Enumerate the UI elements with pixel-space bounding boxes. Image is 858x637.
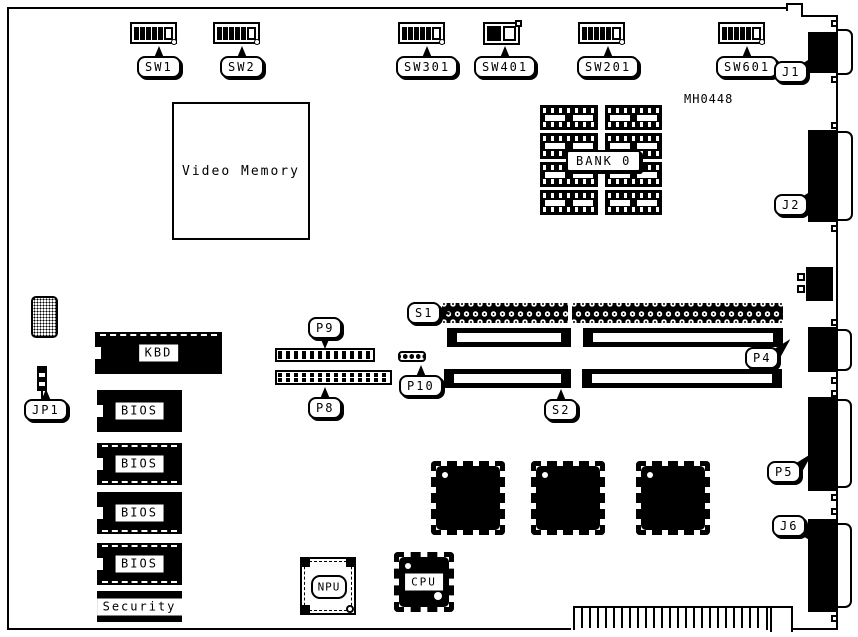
callout-j2: J2 xyxy=(774,194,808,216)
callout-sw301-label: SW301 xyxy=(404,60,450,74)
dip-indicator-dot xyxy=(759,39,765,45)
screw-hole xyxy=(831,390,838,397)
dip-segment-on xyxy=(217,27,222,40)
callout-s1-label: S1 xyxy=(415,306,433,320)
pin-header-p9 xyxy=(275,348,375,362)
dip-indicator-dot xyxy=(171,39,177,45)
npu-socket: NPU xyxy=(300,557,356,615)
screw-hole xyxy=(831,377,838,384)
crystal-component xyxy=(31,296,58,338)
cpu-pin1-dot xyxy=(434,592,442,600)
callout-p10-label: P10 xyxy=(407,379,435,393)
connector-din xyxy=(806,267,833,301)
dip-segment-off xyxy=(164,27,173,40)
dip-indicator-dot xyxy=(439,39,445,45)
video-memory-box: Video Memory xyxy=(172,102,310,240)
dip-indicator-dot xyxy=(254,39,260,45)
dsub-shell-p5 xyxy=(836,399,852,488)
socket-corner xyxy=(346,558,355,567)
video-memory-label: Video Memory xyxy=(182,164,300,179)
screw-hole xyxy=(831,76,838,83)
callout-p9: P9 xyxy=(308,317,342,339)
dip-segment-on xyxy=(223,27,228,40)
chip-notch xyxy=(97,458,103,470)
dip-segment-off xyxy=(247,27,256,40)
motherboard-diagram: SW1 SW2 SW301 SW401 SW201 SW601 J1 J2 P4… xyxy=(0,0,858,637)
connector-p4 xyxy=(808,327,838,372)
dip-segment-on xyxy=(152,27,157,40)
dip-segment-off xyxy=(752,27,761,40)
pointer-up-icon xyxy=(41,389,51,401)
bios-chip-label: BIOS xyxy=(115,403,164,420)
qfp-chip xyxy=(536,466,600,530)
dip-segment-off xyxy=(432,27,441,40)
dip-segment-on xyxy=(420,27,425,40)
callout-sw401: SW401 xyxy=(474,56,536,78)
connector-j1 xyxy=(808,32,838,73)
jumper-jp1 xyxy=(37,366,47,391)
memory-chip xyxy=(540,105,598,130)
pin-row xyxy=(278,373,389,377)
screw-hole xyxy=(831,319,838,326)
chip-dashes xyxy=(102,481,177,483)
dip-segment-on xyxy=(734,27,739,40)
bios-chip-2: BIOS xyxy=(97,443,182,485)
bios-chip-3: BIOS xyxy=(97,492,182,534)
callout-p8: P8 xyxy=(308,397,342,419)
socket-pin1-dot xyxy=(346,605,354,613)
chip-notch xyxy=(97,507,103,519)
pin-header-p10 xyxy=(398,351,426,362)
callout-sw201-label: SW201 xyxy=(585,60,631,74)
callout-sw2-label: SW2 xyxy=(228,60,256,74)
dip-switch-sw2 xyxy=(213,22,260,44)
callout-sw601-label: SW601 xyxy=(724,60,770,74)
chip-dashes xyxy=(100,334,217,336)
screw-hole xyxy=(831,225,838,232)
dip-segment-on xyxy=(408,27,413,40)
chip-notch xyxy=(95,347,101,359)
pointer-up-icon xyxy=(416,365,426,377)
callout-j6: J6 xyxy=(772,515,806,537)
bios-chip-1: BIOS xyxy=(97,390,182,432)
security-chip-label: Security xyxy=(97,598,183,615)
bios-chip-label: BIOS xyxy=(115,456,164,473)
pointer-right-icon xyxy=(439,309,451,317)
screw-hole xyxy=(831,20,838,27)
callout-p5: P5 xyxy=(767,461,801,483)
dsub-shell-j1 xyxy=(836,29,853,75)
dip-segment-on xyxy=(594,27,599,40)
chip-notch xyxy=(97,405,103,417)
callout-sw1-label: SW1 xyxy=(145,60,173,74)
memory-chip xyxy=(605,190,663,215)
callout-s2-label: S2 xyxy=(552,403,570,417)
dip-segment-on xyxy=(414,27,419,40)
dip-segment-on xyxy=(740,27,745,40)
callout-sw601: SW601 xyxy=(716,56,778,78)
expansion-slot xyxy=(444,369,571,388)
pin-row xyxy=(278,355,372,359)
memory-chip xyxy=(540,190,598,215)
connector-p5 xyxy=(808,397,838,491)
dip-segment-on xyxy=(600,27,605,40)
pointer-up-icon xyxy=(422,46,432,58)
dip-segment-on xyxy=(487,26,501,41)
dip-segment-on xyxy=(229,27,234,40)
pointer-down-icon xyxy=(320,337,330,349)
dip-segment-on xyxy=(606,27,611,40)
screw-hole xyxy=(831,122,838,129)
connector-j6 xyxy=(808,519,838,612)
callout-sw401-label: SW401 xyxy=(482,60,528,74)
cpu-chip: CPU xyxy=(399,557,449,607)
chip-dashes xyxy=(102,530,177,532)
callout-p9-label: P9 xyxy=(316,321,334,335)
qfp-chip xyxy=(641,466,705,530)
connector-din-tab xyxy=(797,273,805,281)
callout-j6-label: J6 xyxy=(780,519,798,533)
dip-segment-on xyxy=(426,27,431,40)
pin-strip-s1-right xyxy=(572,303,783,323)
dip-segment-on xyxy=(746,27,751,40)
chip-dashes xyxy=(102,545,177,547)
screw-hole xyxy=(831,615,838,622)
kbd-chip-label: KBD xyxy=(139,345,179,362)
dip-segment-on xyxy=(134,27,139,40)
chip-notch xyxy=(97,558,103,570)
pointer-up-icon xyxy=(154,46,164,58)
socket-corner xyxy=(301,605,310,614)
pointer-up-icon xyxy=(320,387,330,399)
part-number: MH0448 xyxy=(684,92,733,106)
dsub-shell-p4 xyxy=(836,329,852,371)
callout-p10: P10 xyxy=(399,375,443,397)
dsub-shell-j6 xyxy=(836,523,852,608)
dip-switch-sw1 xyxy=(130,22,177,44)
dip-segment-off xyxy=(612,27,621,40)
expansion-slot xyxy=(447,328,571,347)
pointer-up-icon xyxy=(603,46,613,58)
callout-j2-label: J2 xyxy=(782,198,800,212)
callout-sw301: SW301 xyxy=(396,56,458,78)
callout-s1: S1 xyxy=(407,302,441,324)
security-chip: Security xyxy=(97,591,182,622)
callout-p4-label: P4 xyxy=(753,351,771,365)
bank0-label: BANK 0 xyxy=(566,150,641,172)
socket-corner xyxy=(301,558,310,567)
dip-segment-on xyxy=(158,27,163,40)
pin-row xyxy=(278,378,389,382)
bios-chip-label: BIOS xyxy=(115,556,164,573)
bios-chip-label: BIOS xyxy=(115,505,164,522)
callout-s2: S2 xyxy=(544,399,578,421)
kbd-chip: KBD xyxy=(95,332,222,374)
callout-sw1: SW1 xyxy=(137,56,181,78)
dip-segment-on xyxy=(241,27,246,40)
callout-sw2: SW2 xyxy=(220,56,264,78)
bios-chip-4: BIOS xyxy=(97,543,182,585)
dip-switch-sw401 xyxy=(483,22,520,45)
dip-segment-on xyxy=(728,27,733,40)
qfp-chip xyxy=(436,466,500,530)
pointer-up-icon xyxy=(237,46,247,58)
dip-segment-on xyxy=(146,27,151,40)
dip-indicator-dot xyxy=(619,39,625,45)
connector-din-tab xyxy=(797,285,805,293)
memory-chip xyxy=(605,105,663,130)
callout-p8-label: P8 xyxy=(316,401,334,415)
expansion-slot xyxy=(582,369,782,388)
pointer-up-icon xyxy=(742,46,752,58)
card-edge-fingers xyxy=(581,608,765,628)
dip-switch-sw601 xyxy=(718,22,765,44)
dip-segment-on xyxy=(402,27,407,40)
dip-segment-on xyxy=(582,27,587,40)
callout-jp1: JP1 xyxy=(24,399,68,421)
screw-hole xyxy=(831,508,838,515)
dsub-shell-j2 xyxy=(836,131,853,221)
board-edge-line xyxy=(801,15,838,17)
callout-j1: J1 xyxy=(774,61,808,83)
dip-segment-off xyxy=(503,26,516,41)
callout-j1-label: J1 xyxy=(782,65,800,79)
pointer-up-icon xyxy=(500,46,510,58)
screw-hole xyxy=(831,494,838,501)
callout-p5-label: P5 xyxy=(775,465,793,479)
pointer-up-icon xyxy=(556,389,566,401)
card-edge-left-line xyxy=(573,606,575,630)
board-edge-tab xyxy=(770,606,793,632)
cpu-label: CPU xyxy=(405,574,443,591)
card-edge-right-line xyxy=(766,606,768,630)
pin-strip-s1-left xyxy=(442,303,568,323)
connector-j2 xyxy=(808,130,838,222)
dip-switch-sw301 xyxy=(398,22,445,44)
npu-label: NPU xyxy=(316,581,343,594)
npu-ring: NPU xyxy=(311,575,347,599)
chip-dashes xyxy=(102,445,177,447)
dip-switch-sw201 xyxy=(578,22,625,44)
dip-segment-on xyxy=(140,27,145,40)
dip-segment-on xyxy=(235,27,240,40)
chip-dashes xyxy=(102,581,177,583)
callout-p4: P4 xyxy=(745,347,779,369)
dip-segment-on xyxy=(722,27,727,40)
callout-sw201: SW201 xyxy=(577,56,639,78)
dip-segment-on xyxy=(588,27,593,40)
callout-jp1-label: JP1 xyxy=(32,403,60,417)
pin-header-p8 xyxy=(275,370,392,385)
dip-indicator-square xyxy=(515,20,522,27)
expansion-slot xyxy=(583,328,783,347)
